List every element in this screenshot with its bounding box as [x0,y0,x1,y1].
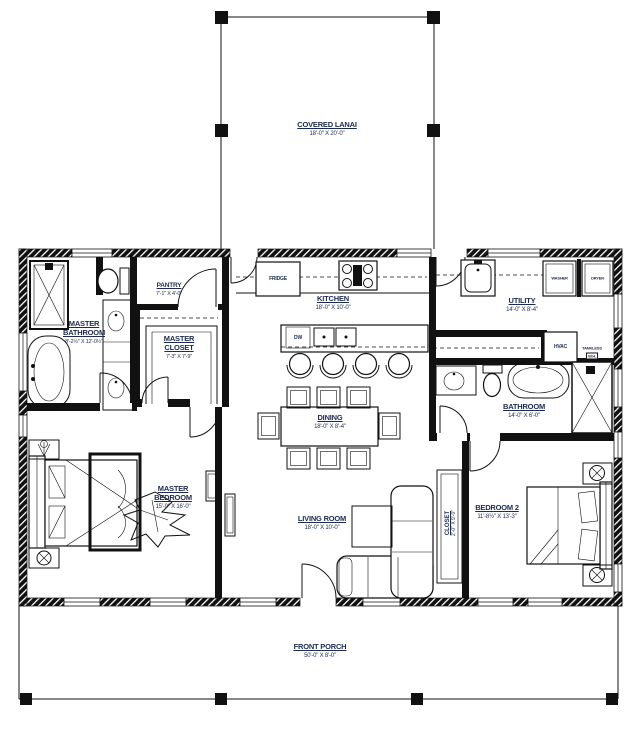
bathroom-shower [572,362,612,433]
plant-icon [38,442,50,456]
window [614,294,622,328]
sectional-sofa [337,486,433,598]
master-bed [29,454,140,550]
dining-chair [287,387,310,408]
master-shower [30,261,68,329]
coffee-table [352,506,392,547]
door-pantry [178,269,216,307]
master-closet-label: MASTER CLOSET7'-3" X 7'-9" [156,335,202,360]
porch-post [20,693,32,705]
bathroom-label: BATHROOM14'-0" X 6'-0" [503,403,545,420]
washer-label: WASHER [551,276,567,281]
window [488,249,540,257]
master-tub [28,336,70,408]
window [64,598,100,606]
dresser [206,471,218,501]
living-room-label: LIVING ROOM18'-0" X 10'-0" [298,515,346,532]
window [363,598,400,606]
dining-chair [317,387,340,408]
bed-2 [527,482,612,569]
dining-chair [347,387,370,408]
door-bathroom [440,406,467,433]
range-stove [339,261,377,290]
porch-post [606,693,618,705]
shower-head-icon [45,263,53,270]
window [614,432,622,458]
fridge-label: FRIDGE [269,276,287,282]
water-heater-label: W.H. [586,353,598,360]
dining-chair [287,448,310,469]
pantry-label: PANTRY7'-1" X 4'-0" [156,282,182,297]
window [614,564,622,592]
master-vanity [103,300,133,410]
floor-plan-page: COVERED LANAI18'-0" X 20'-0" KITCHEN18'-… [0,0,637,731]
master-closet-shelves [140,318,218,404]
master-bathroom-label: MASTER BATHROOM8'-2½" X 12'-0½" [57,320,111,345]
window [478,598,513,606]
master-bedroom-label: MASTER BEDROOM15'-9" X 16'-0" [146,485,200,511]
master-toilet [98,268,129,294]
utility-label: UTILITY14'-0" X 8'-4" [506,297,538,314]
door-lanai-kitchen [231,257,257,283]
utility-sink [461,260,495,296]
porch-post [215,693,227,705]
dining-chair [258,413,279,439]
window [528,598,562,606]
porch-post [411,693,423,705]
dining-label: DINING18'-0" X 8'-4" [314,414,346,431]
closet2-label: CLOSET2'-0" X 9'-0" [445,510,457,536]
window [240,598,276,606]
window [150,598,186,606]
bathroom-toilet [483,365,502,397]
bathroom-tub [508,363,569,398]
door-front-entry [302,564,336,598]
dining-chair [317,448,340,469]
bar-stools [287,354,412,379]
hvac-label: HVAC [554,344,567,350]
window [397,249,431,257]
dining-chair [379,413,400,439]
kitchen-label: KITCHEN18'-0" X 10'-0" [316,295,351,312]
floor-plan-drawing [0,0,637,731]
covered-lanai-label: COVERED LANAI18'-0" X 20'-0" [297,121,357,138]
lanai-post [427,11,440,24]
nightstand [583,463,612,484]
tv-console [225,494,235,536]
bathroom-vanity [436,366,476,395]
tankless-label: TANKLESS [582,346,602,351]
window [614,369,622,407]
nightstand [29,548,59,568]
lanai-post [215,11,228,24]
front-porch-label: FRONT PORCH50'-0" X 8'-0" [294,643,347,660]
kitchen-island [281,325,428,352]
door-bedroom2 [470,441,500,471]
dryer-label: DRYER [591,276,604,281]
door-master-bathroom [100,373,132,403]
window [19,415,27,437]
window [72,249,112,257]
dishwasher-label: DW [294,335,302,341]
dining-chair [347,448,370,469]
bedroom2-label: BEDROOM 211'-8½" X 13'-3" [475,504,519,521]
lanai-post [427,124,440,137]
window [19,333,27,391]
lanai-post [215,124,228,137]
shower-head-icon [586,366,595,374]
